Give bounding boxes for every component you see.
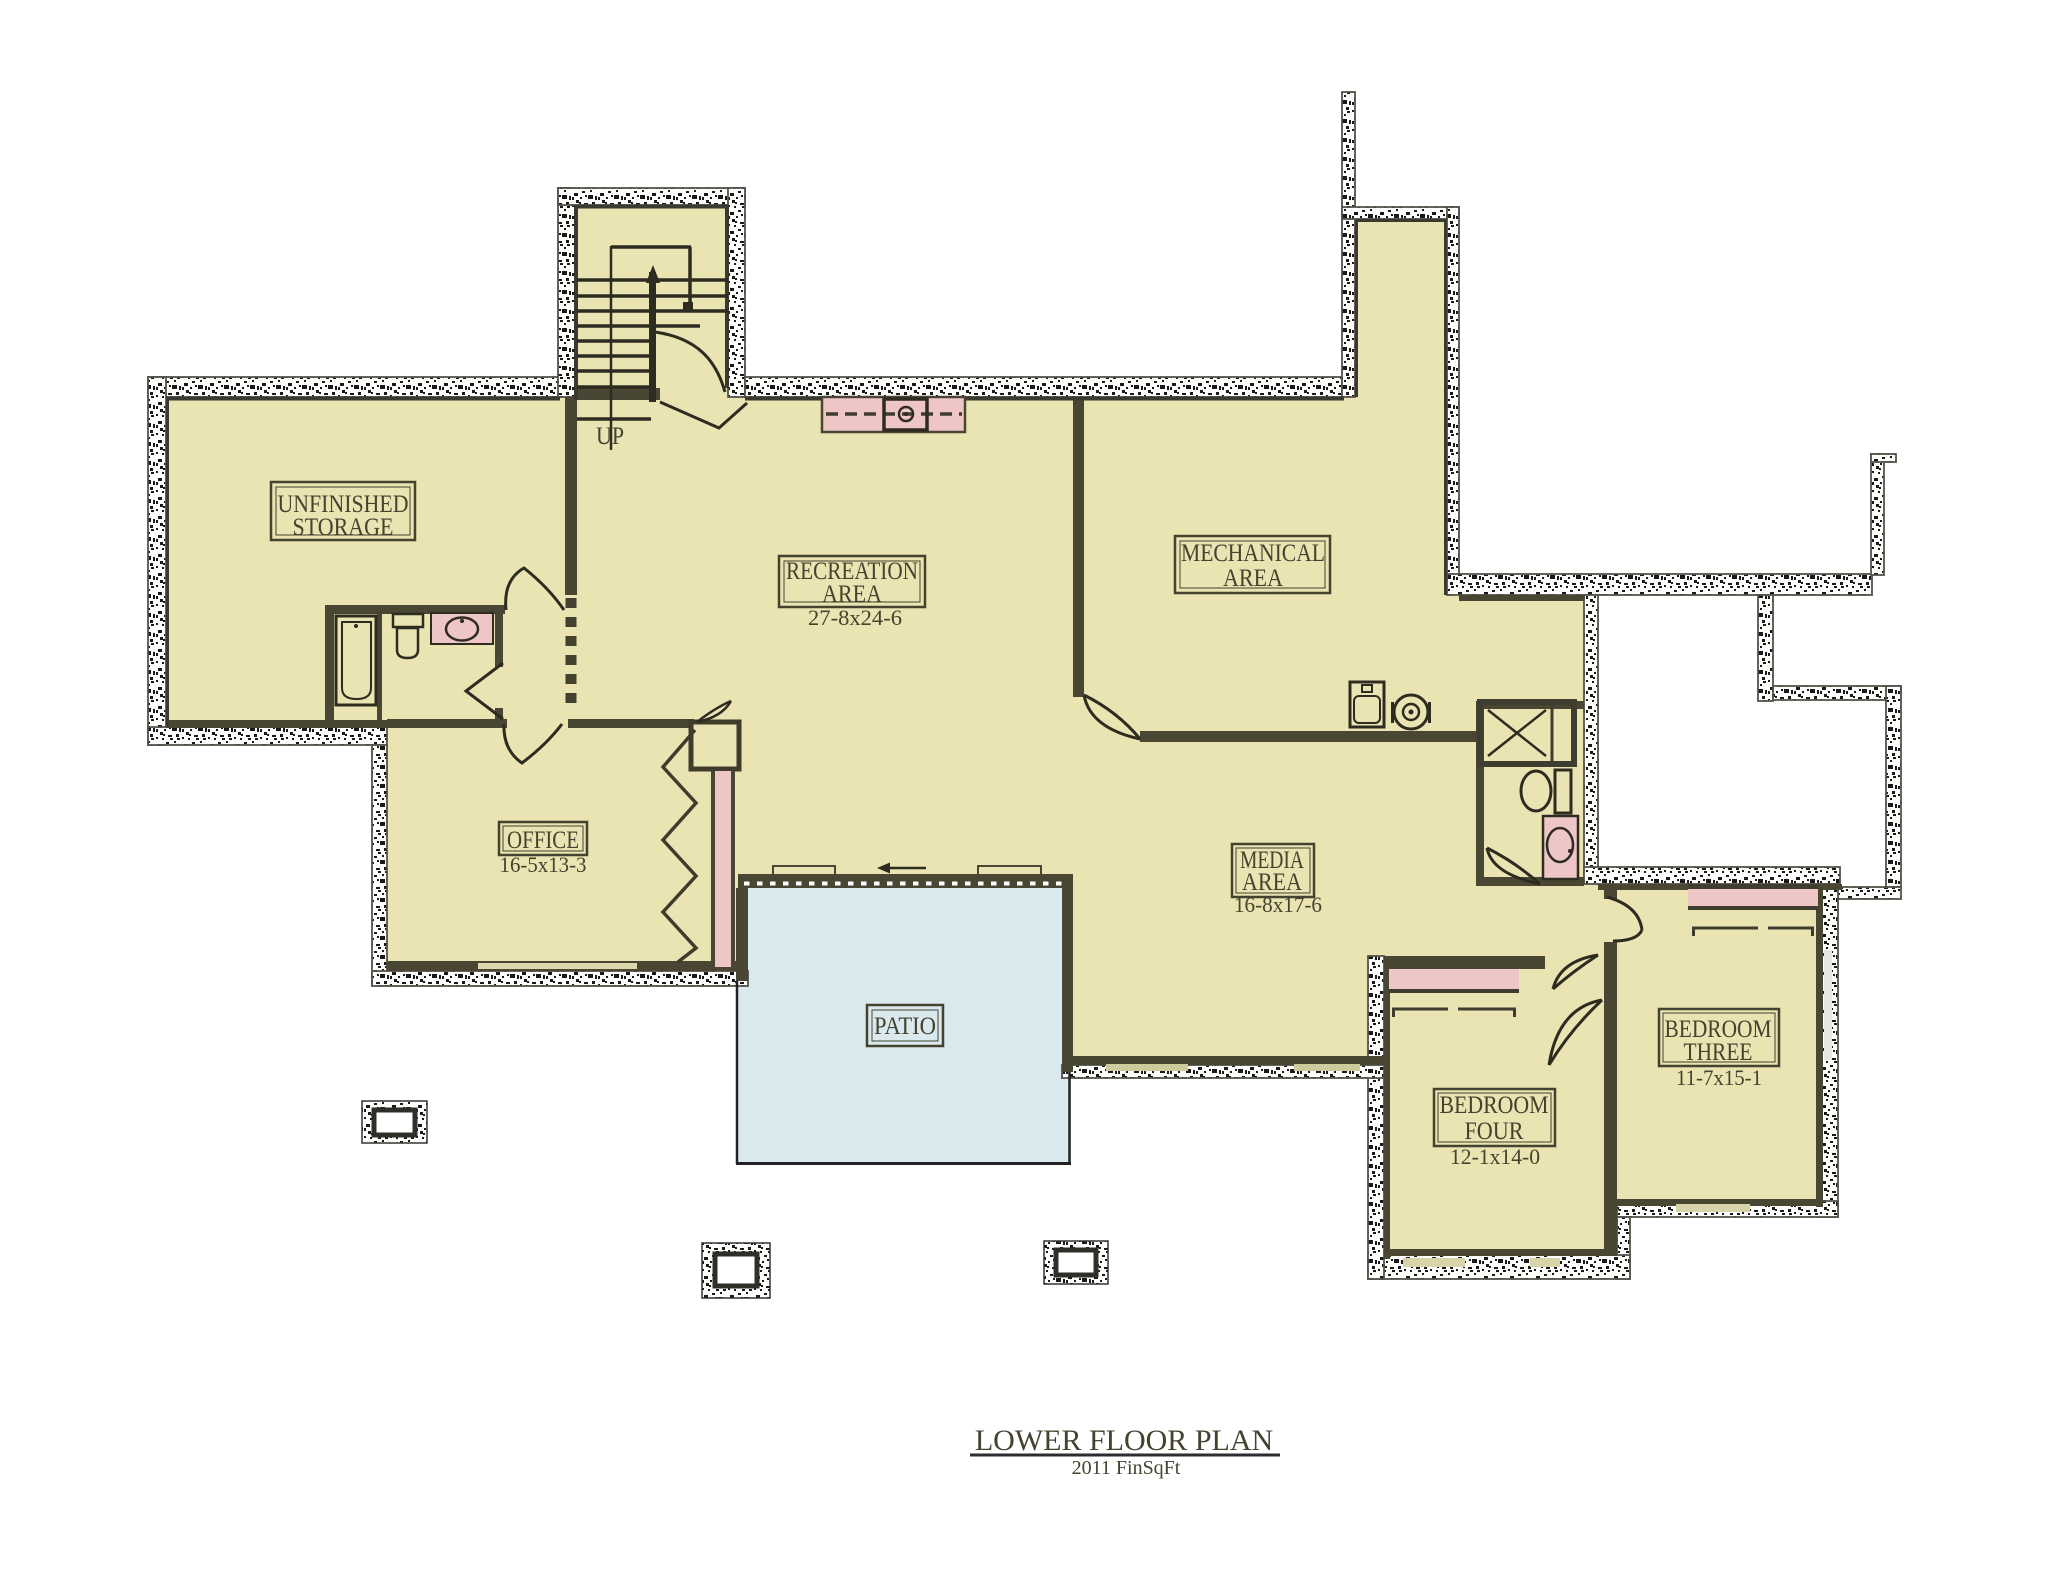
svg-text:PATIO: PATIO	[874, 1013, 936, 1040]
svg-text:UP: UP	[596, 423, 624, 450]
svg-text:STORAGE: STORAGE	[293, 514, 394, 541]
svg-text:FOUR: FOUR	[1465, 1118, 1524, 1145]
svg-text:LOWER FLOOR PLAN: LOWER FLOOR PLAN	[975, 1424, 1273, 1457]
svg-text:AREA: AREA	[822, 581, 882, 608]
svg-text:AREA: AREA	[1223, 565, 1283, 592]
svg-text:16-8x17-6: 16-8x17-6	[1234, 892, 1322, 917]
svg-text:11-7x15-1: 11-7x15-1	[1676, 1065, 1762, 1090]
svg-text:27-8x24-6: 27-8x24-6	[808, 605, 902, 630]
svg-text:12-1x14-0: 12-1x14-0	[1450, 1144, 1540, 1169]
svg-text:MECHANICAL: MECHANICAL	[1181, 540, 1325, 567]
svg-text:OFFICE: OFFICE	[507, 827, 579, 854]
svg-text:2011 FinSqFt: 2011 FinSqFt	[1072, 1457, 1181, 1479]
svg-text:16-5x13-3: 16-5x13-3	[500, 852, 587, 877]
svg-text:BEDROOM: BEDROOM	[1440, 1092, 1549, 1119]
svg-text:THREE: THREE	[1684, 1039, 1753, 1066]
